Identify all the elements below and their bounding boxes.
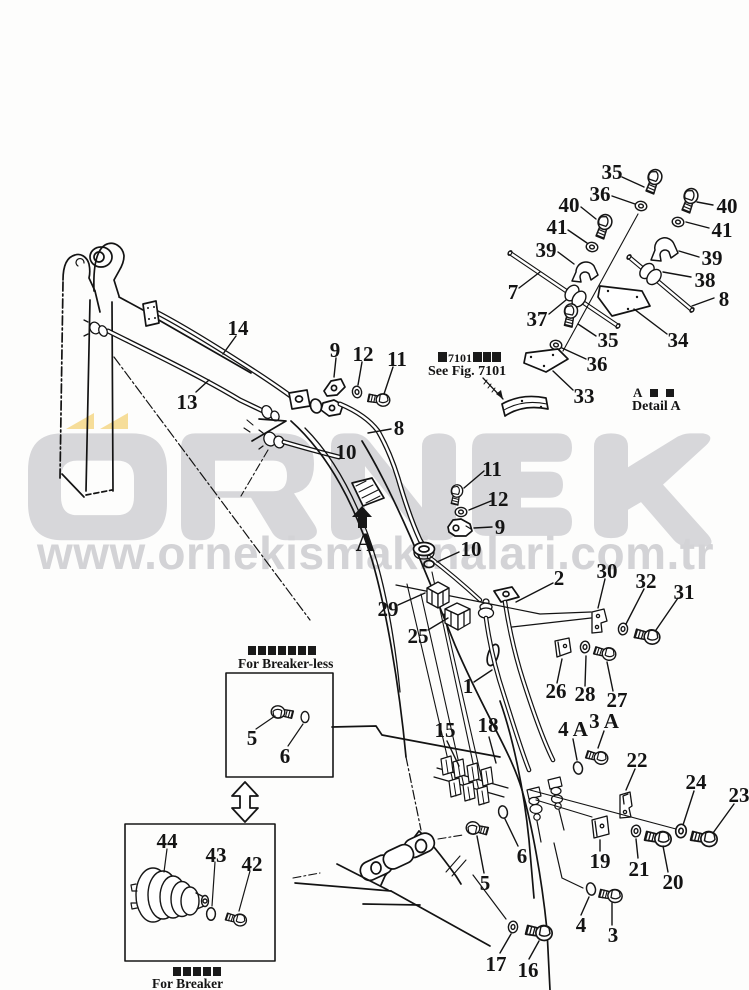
svg-text:13: 13 <box>177 390 198 414</box>
svg-text:4 A: 4 A <box>558 717 589 741</box>
svg-text:34: 34 <box>668 328 690 352</box>
svg-text:12: 12 <box>488 487 509 511</box>
svg-text:11: 11 <box>387 347 407 371</box>
svg-text:20: 20 <box>663 870 684 894</box>
svg-text:1: 1 <box>463 674 474 698</box>
svg-text:28: 28 <box>575 682 596 706</box>
svg-text:15: 15 <box>435 718 456 742</box>
svg-text:7101: 7101 <box>448 351 472 365</box>
svg-text:12: 12 <box>353 342 374 366</box>
svg-text:44: 44 <box>157 829 179 853</box>
svg-text:8: 8 <box>719 287 730 311</box>
svg-text:9: 9 <box>495 515 506 539</box>
svg-text:10: 10 <box>461 537 482 561</box>
svg-text:22: 22 <box>627 748 648 772</box>
svg-text:35: 35 <box>602 160 623 184</box>
svg-text:41: 41 <box>547 215 568 239</box>
svg-text:36: 36 <box>587 352 608 376</box>
svg-text:42: 42 <box>242 852 263 876</box>
svg-text:39: 39 <box>536 238 557 262</box>
svg-text:11: 11 <box>482 457 502 481</box>
svg-text:26: 26 <box>546 679 567 703</box>
svg-text:36: 36 <box>590 182 611 206</box>
svg-text:24: 24 <box>686 770 708 794</box>
svg-text:21: 21 <box>629 857 650 881</box>
svg-text:See Fig. 7101: See Fig. 7101 <box>428 364 506 379</box>
svg-text:5: 5 <box>247 726 258 750</box>
svg-text:4: 4 <box>576 913 587 937</box>
svg-text:25: 25 <box>408 624 429 648</box>
svg-text:7: 7 <box>508 280 519 304</box>
svg-text:31: 31 <box>674 580 695 604</box>
svg-text:A: A <box>356 528 375 557</box>
svg-text:8: 8 <box>394 416 405 440</box>
svg-text:33: 33 <box>574 384 595 408</box>
svg-text:A: A <box>633 385 643 400</box>
svg-text:3: 3 <box>608 923 619 947</box>
svg-text:41: 41 <box>712 218 733 242</box>
svg-text:For Breaker-less: For Breaker-less <box>238 656 333 671</box>
svg-text:29: 29 <box>378 597 399 621</box>
svg-text:32: 32 <box>636 569 657 593</box>
svg-text:5: 5 <box>480 871 491 895</box>
svg-text:35: 35 <box>598 328 619 352</box>
svg-text:9: 9 <box>330 338 341 362</box>
svg-text:17: 17 <box>486 952 507 976</box>
svg-text:38: 38 <box>695 268 716 292</box>
svg-text:40: 40 <box>559 193 580 217</box>
svg-text:19: 19 <box>590 849 611 873</box>
svg-text:16: 16 <box>518 958 539 982</box>
svg-text:6: 6 <box>280 744 291 768</box>
svg-text:10: 10 <box>336 440 357 464</box>
svg-text:For Breaker: For Breaker <box>152 976 223 990</box>
svg-text:39: 39 <box>702 246 723 270</box>
svg-text:43: 43 <box>206 843 227 867</box>
svg-text:18: 18 <box>478 713 499 737</box>
svg-text:37: 37 <box>527 307 548 331</box>
svg-text:6: 6 <box>517 844 528 868</box>
svg-text:2: 2 <box>554 566 565 590</box>
svg-text:3 A: 3 A <box>589 709 620 733</box>
svg-text:23: 23 <box>729 783 749 807</box>
svg-text:Detail A: Detail A <box>632 399 681 414</box>
svg-text:14: 14 <box>228 316 250 340</box>
svg-text:40: 40 <box>717 194 738 218</box>
svg-text:30: 30 <box>597 559 618 583</box>
